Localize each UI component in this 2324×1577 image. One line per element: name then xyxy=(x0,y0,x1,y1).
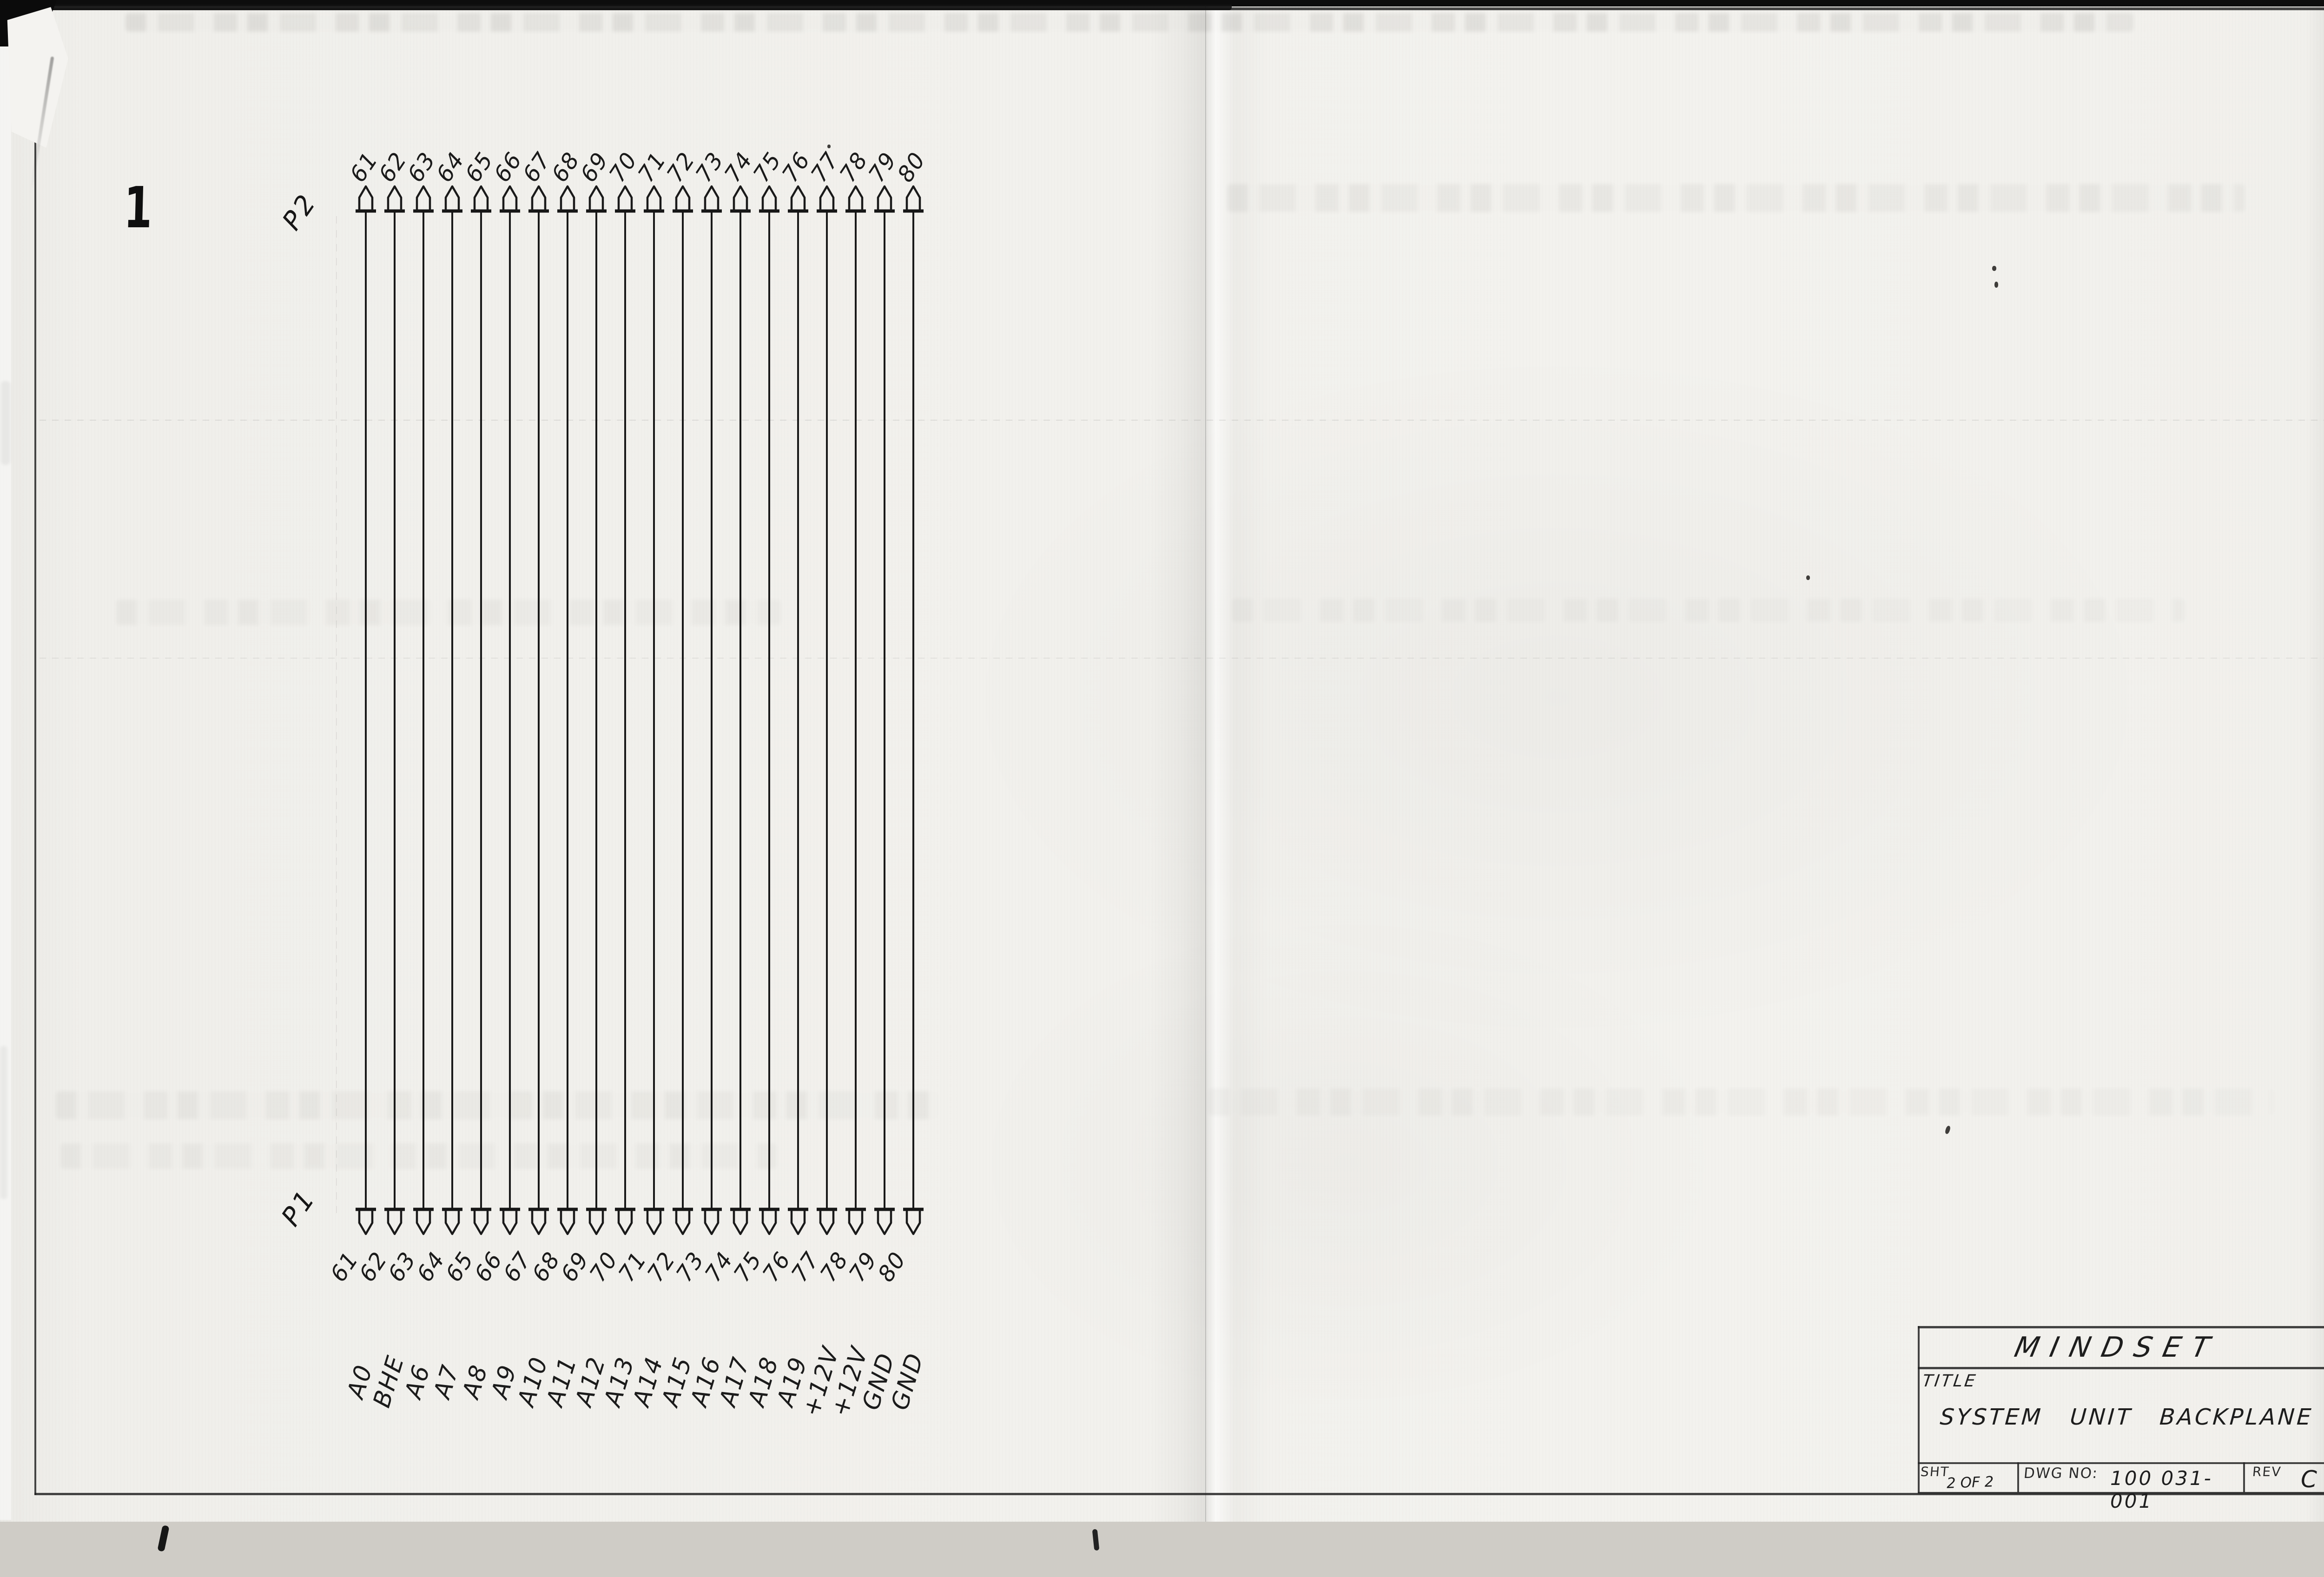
pin-arrow-bottom-icon xyxy=(470,1207,492,1235)
pin-arrow-bottom-icon xyxy=(614,1207,636,1235)
scanned-drawing-sheet: 1 P2 P1 6161A06262BHE6363A66464A76565A86… xyxy=(0,0,2324,1577)
page-number-mark: 1 xyxy=(123,179,153,236)
pin-arrow-top-icon xyxy=(413,185,434,213)
pin-arrow-bottom-icon xyxy=(643,1207,665,1235)
pen-mark xyxy=(157,1525,169,1552)
sheet-label: SHT xyxy=(1920,1464,1950,1479)
dwg-no-value: 100 031-001 xyxy=(2110,1467,2243,1512)
bus-wire xyxy=(912,211,914,1208)
pin-arrow-top-icon xyxy=(643,185,665,213)
pin-arrow-top-icon xyxy=(759,185,780,213)
rev-cell: REV C xyxy=(2245,1462,2324,1493)
sheet-cell: SHT 2 OF 2 xyxy=(1918,1462,2017,1493)
pin-arrow-top-icon xyxy=(730,185,751,213)
rev-label: REV xyxy=(2252,1464,2282,1479)
bus-wire xyxy=(451,211,453,1208)
bus-wire xyxy=(365,211,367,1208)
right-edge-crease xyxy=(2305,0,2324,1522)
bus-wire xyxy=(682,211,684,1208)
pin-arrow-top-icon xyxy=(499,185,521,213)
pin-arrow-bottom-icon xyxy=(557,1207,578,1235)
dwg-no-label: DWG NO: xyxy=(2023,1465,2099,1482)
ghost-band xyxy=(1232,599,2185,622)
ghost-band xyxy=(60,1143,776,1169)
pin-arrow-top-icon xyxy=(845,185,866,213)
pin-arrow-bottom-icon xyxy=(384,1207,405,1235)
bus-wire xyxy=(423,211,424,1208)
pin-arrow-bottom-icon xyxy=(499,1207,521,1235)
pin-arrow-bottom-icon xyxy=(413,1207,434,1235)
pin-arrow-bottom-icon xyxy=(903,1207,924,1235)
ghost-band xyxy=(1208,1089,2273,1115)
pin-arrow-top-icon xyxy=(586,185,607,213)
drawing-title: SYSTEM UNIT BACKPLANE xyxy=(1939,1404,2314,1430)
bus-wire xyxy=(567,211,568,1208)
bus-wire xyxy=(768,211,770,1208)
pin-arrow-bottom-icon xyxy=(816,1207,838,1235)
bus-wire xyxy=(855,211,857,1208)
ghost-band xyxy=(1227,184,2245,212)
drawing-frame-left xyxy=(34,8,36,1495)
pin-arrow-bottom-icon xyxy=(874,1207,895,1235)
ink-speck xyxy=(1806,575,1810,580)
pin-arrow-top-icon xyxy=(614,185,636,213)
ghost-band xyxy=(56,1091,939,1119)
pin-arrow-bottom-icon xyxy=(759,1207,780,1235)
pin-arrow-bottom-icon xyxy=(355,1207,376,1235)
pin-arrow-top-icon xyxy=(557,185,578,213)
sheet-value: 2 OF 2 xyxy=(1946,1473,1994,1492)
pin-arrow-top-icon xyxy=(787,185,809,213)
pin-arrow-top-icon xyxy=(701,185,722,213)
pin-arrow-bottom-icon xyxy=(442,1207,463,1235)
company-name: MINDSET xyxy=(1914,1329,2321,1366)
pin-arrow-bottom-icon xyxy=(730,1207,751,1235)
title-label: TITLE xyxy=(1921,1372,1978,1391)
scanner-edge-top-thick xyxy=(0,5,1232,10)
pin-arrow-bottom-icon xyxy=(586,1207,607,1235)
pin-arrow-top-icon xyxy=(528,185,549,213)
bus-wire xyxy=(797,211,799,1208)
rev-value: C xyxy=(2301,1466,2317,1493)
pin-arrow-bottom-icon xyxy=(672,1207,693,1235)
title-block: MINDSET TITLE SYSTEM UNIT BACKPLANE SHT … xyxy=(1918,1326,2324,1493)
pin-arrow-top-icon xyxy=(384,185,405,213)
pin-arrow-top-icon xyxy=(470,185,492,213)
pin-arrow-bottom-icon xyxy=(528,1207,549,1235)
bus-wire xyxy=(538,211,540,1208)
pen-mark xyxy=(1092,1529,1100,1551)
scanner-left-edge xyxy=(0,37,11,1520)
pin-arrow-top-icon xyxy=(816,185,838,213)
title-block-border xyxy=(1918,1326,2324,1328)
ghost-band xyxy=(116,600,781,625)
pin-arrow-top-icon xyxy=(442,185,463,213)
bus-wire xyxy=(480,211,482,1208)
pin-arrow-top-icon xyxy=(355,185,376,213)
bus-wire xyxy=(739,211,741,1208)
pin-arrow-bottom-icon xyxy=(845,1207,866,1235)
bus-wire xyxy=(826,211,828,1208)
guide-line xyxy=(336,216,337,1213)
guide-line xyxy=(40,658,2324,659)
edge-smudge xyxy=(0,1046,7,1199)
pin-arrow-top-icon xyxy=(874,185,895,213)
title-block-bottom-row: SHT 2 OF 2 DWG NO: 100 031-001 REV C xyxy=(1918,1462,2324,1493)
bus-wire xyxy=(509,211,511,1208)
edge-smudge xyxy=(1,381,10,465)
pin-arrow-bottom-icon xyxy=(787,1207,809,1235)
ink-speck xyxy=(1994,282,1998,288)
ink-speck xyxy=(1992,266,1996,271)
bus-wire xyxy=(711,211,713,1208)
title-block-border xyxy=(1918,1367,2324,1369)
bus-wire xyxy=(595,211,597,1208)
guide-line xyxy=(40,420,2324,421)
pin-arrow-bottom-icon xyxy=(701,1207,722,1235)
pin-arrow-top-icon xyxy=(672,185,693,213)
pin-arrow-top-icon xyxy=(903,185,924,213)
fold-crease-line xyxy=(1205,0,1206,1522)
bus-wire xyxy=(624,211,626,1208)
ghost-band xyxy=(125,13,2133,32)
ink-speck xyxy=(827,145,831,148)
bus-wire xyxy=(653,211,655,1208)
dwg-cell: DWG NO: 100 031-001 xyxy=(2019,1462,2243,1493)
fold-crease xyxy=(1148,0,1269,1522)
bus-wire xyxy=(394,211,396,1208)
bus-wire xyxy=(884,211,885,1208)
